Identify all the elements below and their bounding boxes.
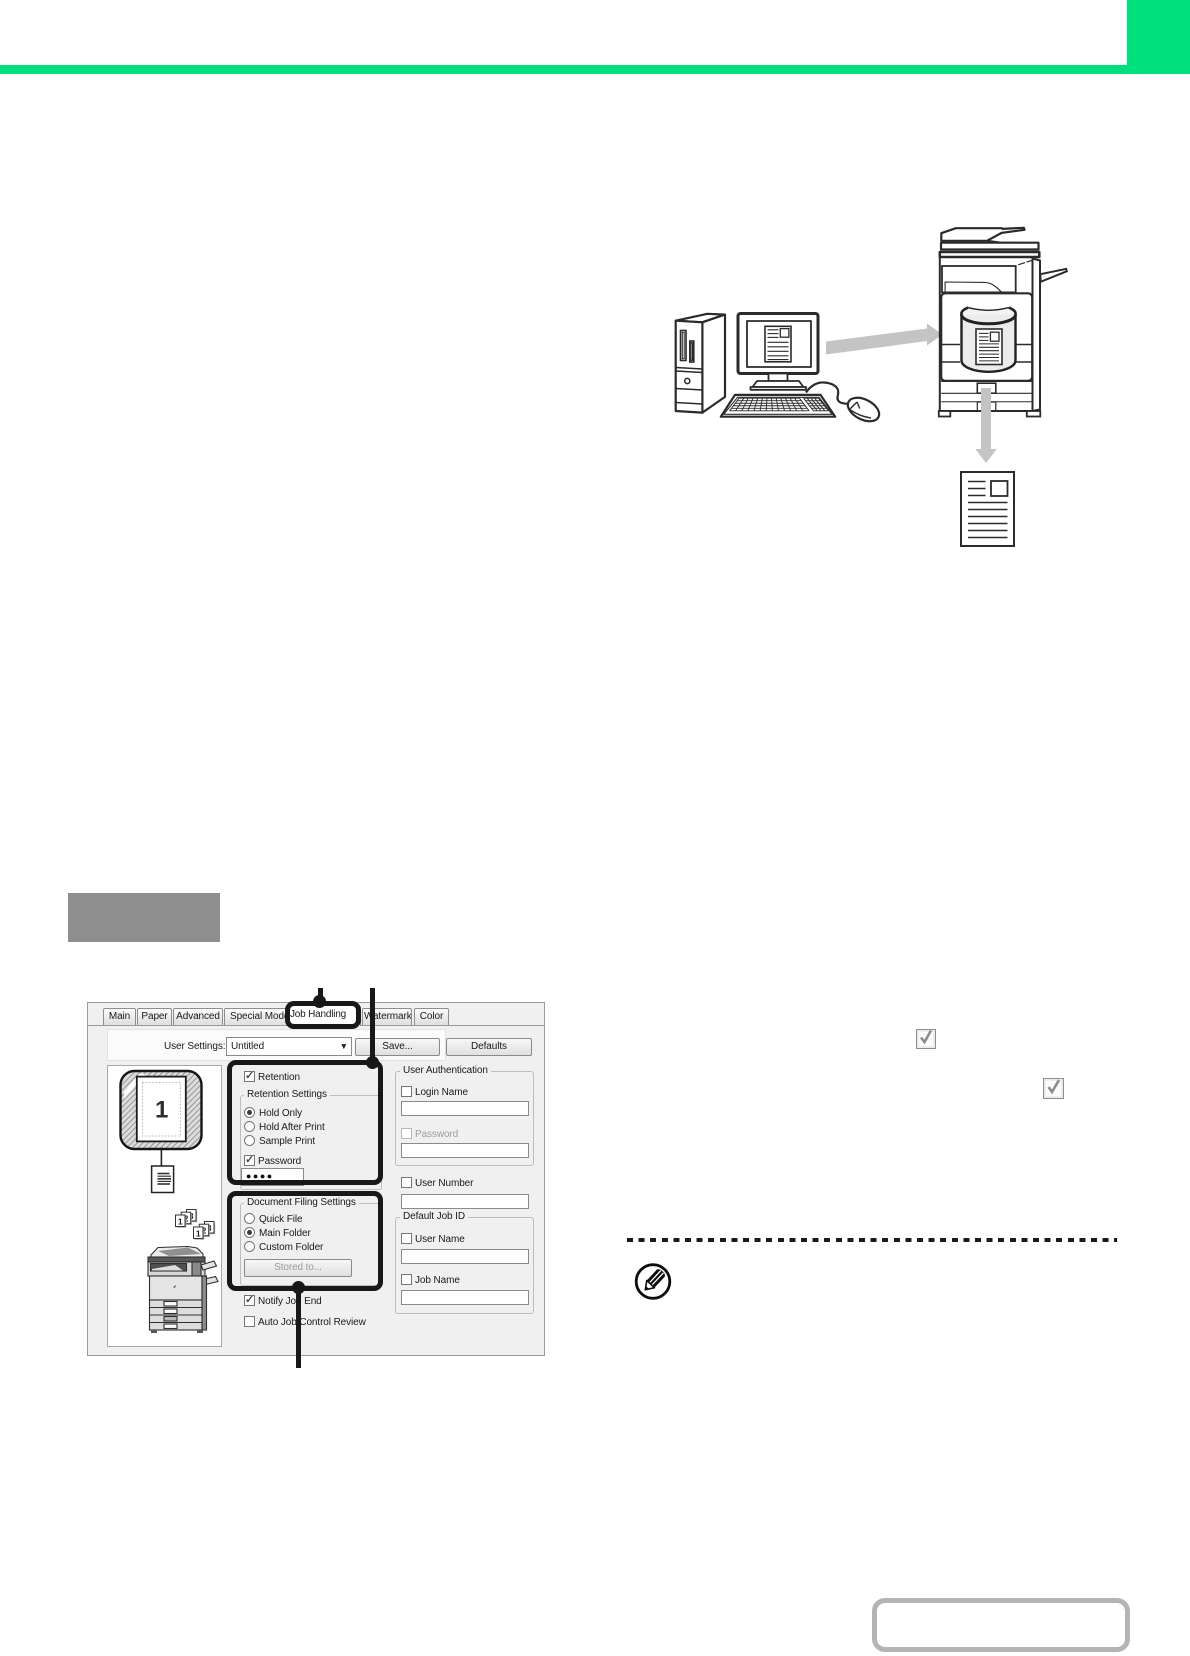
svg-text:1: 1 [196,1229,201,1239]
svg-text:1: 1 [178,1217,183,1227]
svg-text:1: 1 [155,1097,168,1124]
